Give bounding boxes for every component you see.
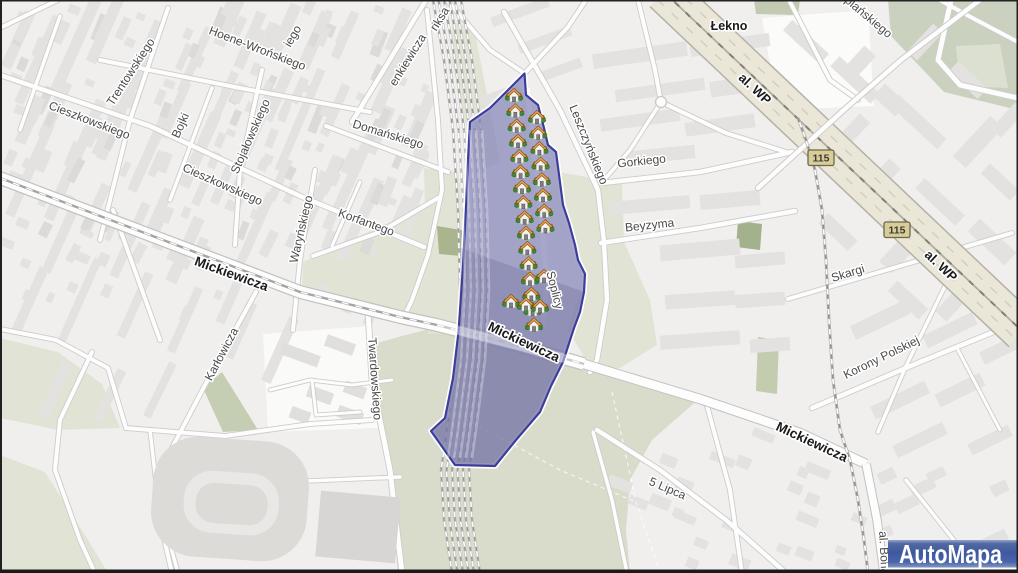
svg-text:115: 115	[813, 153, 830, 165]
svg-text:Łekno: Łekno	[711, 19, 748, 33]
svg-text:115: 115	[889, 225, 906, 237]
svg-text:AutoMapa: AutoMapa	[899, 539, 1002, 569]
